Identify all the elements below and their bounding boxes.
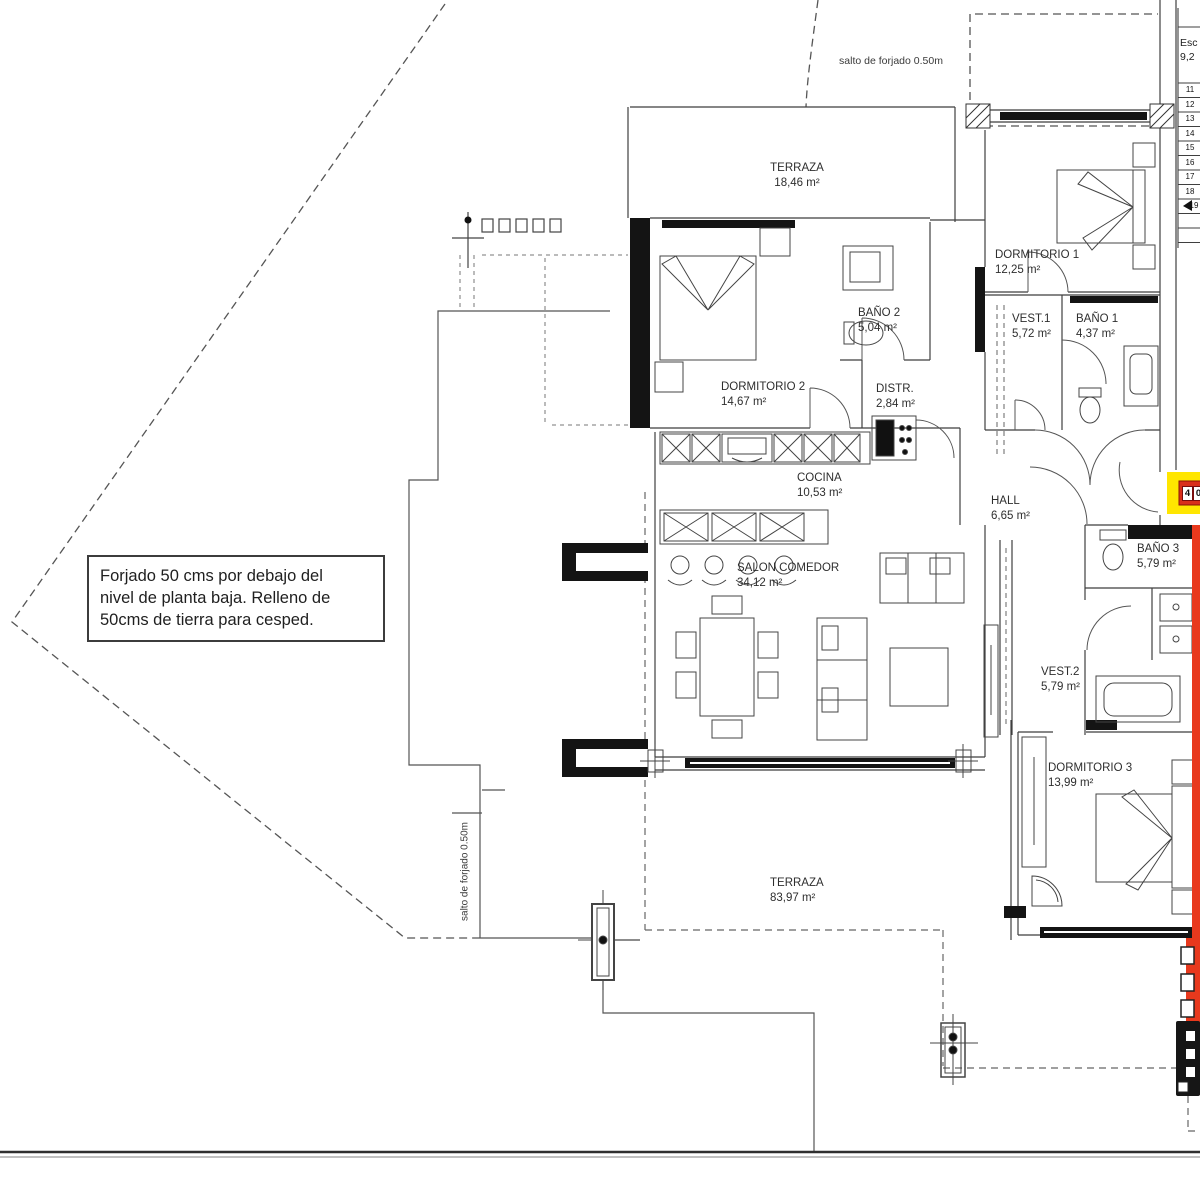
room-label-terraza-bottom: TERRAZA83,97 m² [770, 876, 824, 905]
room-name: SALON COMEDOR [737, 561, 839, 576]
room-area: 4,37 m² [1076, 327, 1118, 342]
room-name: COCINA [797, 471, 842, 486]
unit-number-digit: 4 [1182, 486, 1193, 501]
room-name: DORMITORIO 2 [721, 380, 805, 395]
escalera-area: 9,2 [1180, 51, 1198, 65]
walls-thin [628, 0, 1200, 940]
room-label-cocina: COCINA10,53 m² [797, 471, 842, 500]
annotation-text: salto de forjado 0.50m [826, 55, 956, 68]
room-area: 5,79 m² [1041, 680, 1080, 695]
unit-number-digit: 0 [1193, 486, 1200, 501]
room-area: 34,12 m² [737, 576, 839, 591]
stair-step-number: 16 [1182, 158, 1198, 167]
room-label-vest-2: VEST.25,79 m² [1041, 665, 1080, 694]
room-area: 5,04 m² [858, 321, 900, 336]
room-label-bano-2: BAÑO 25,04 m² [858, 306, 900, 335]
stair-step-number: 11 [1182, 85, 1198, 94]
floor-plan: salto de forjado 0.50m salto de forjado … [0, 0, 1200, 1181]
room-label-dormitorio-3: DORMITORIO 313,99 m² [1048, 761, 1132, 790]
room-name: BAÑO 3 [1137, 542, 1179, 557]
stair-step-number: 14 [1182, 129, 1198, 138]
room-label-bano-3: BAÑO 35,79 m² [1137, 542, 1179, 571]
escalera-name: Esc [1180, 37, 1198, 51]
room-area: 83,97 m² [770, 891, 824, 906]
room-name: TERRAZA [770, 876, 824, 891]
stair-step-number: 13 [1182, 114, 1198, 123]
room-label-dormitorio-1: DORMITORIO 112,25 m² [995, 248, 1079, 277]
note-line: 50cms de tierra para cesped. [100, 610, 372, 632]
note-line: nivel de planta baja. Relleno de [100, 588, 372, 610]
escalera-label: Esc 9,2 [1180, 37, 1198, 64]
room-name: BAÑO 2 [858, 306, 900, 321]
terrace-outline [409, 311, 814, 1152]
room-label-dormitorio-2: DORMITORIO 214,67 m² [721, 380, 805, 409]
room-area: 14,67 m² [721, 395, 805, 410]
room-label-vest-1: VEST.15,72 m² [1012, 312, 1051, 341]
annotation-text: salto de forjado 0.50m [460, 822, 471, 921]
room-name: VEST.2 [1041, 665, 1080, 680]
terrace-dashed-lines [460, 255, 628, 425]
stair-step-number: 12 [1182, 100, 1198, 109]
plot-boundary [12, 0, 1158, 938]
room-label-distribuidor: DISTR.2,84 m² [876, 382, 915, 411]
salto-forjado-top-label: salto de forjado 0.50m [826, 55, 956, 68]
stair-step-number: 15 [1182, 143, 1198, 152]
room-name: BAÑO 1 [1076, 312, 1118, 327]
section-cut-line [0, 1152, 1200, 1157]
room-label-hall: HALL6,65 m² [991, 494, 1030, 523]
stair-step-number: 18 [1182, 187, 1198, 196]
room-area: 5,79 m² [1137, 557, 1179, 572]
room-name: HALL [991, 494, 1030, 509]
room-area: 5,72 m² [1012, 327, 1051, 342]
stair-step-number: 19 [1186, 201, 1200, 210]
room-name: TERRAZA [735, 161, 859, 176]
room-name: DISTR. [876, 382, 915, 397]
room-name: DORMITORIO 1 [995, 248, 1079, 263]
room-label-terraza-top: TERRAZA18,46 m² [735, 161, 859, 190]
room-area: 13,99 m² [1048, 776, 1132, 791]
room-label-bano-1: BAÑO 14,37 m² [1076, 312, 1118, 341]
stair-step-number: 17 [1182, 172, 1198, 181]
note-box: Forjado 50 cms por debajo del nivel de p… [87, 555, 385, 642]
room-name: VEST.1 [1012, 312, 1051, 327]
room-area: 2,84 m² [876, 397, 915, 412]
salto-forjado-left-label: salto de forjado 0.50m [460, 806, 471, 938]
room-area: 6,65 m² [991, 509, 1030, 524]
room-label-salon-comedor: SALON COMEDOR34,12 m² [737, 561, 839, 590]
note-line: Forjado 50 cms por debajo del [100, 566, 372, 588]
room-area: 10,53 m² [797, 486, 842, 501]
room-area: 12,25 m² [995, 263, 1079, 278]
room-area: 18,46 m² [735, 176, 859, 191]
room-name: DORMITORIO 3 [1048, 761, 1132, 776]
